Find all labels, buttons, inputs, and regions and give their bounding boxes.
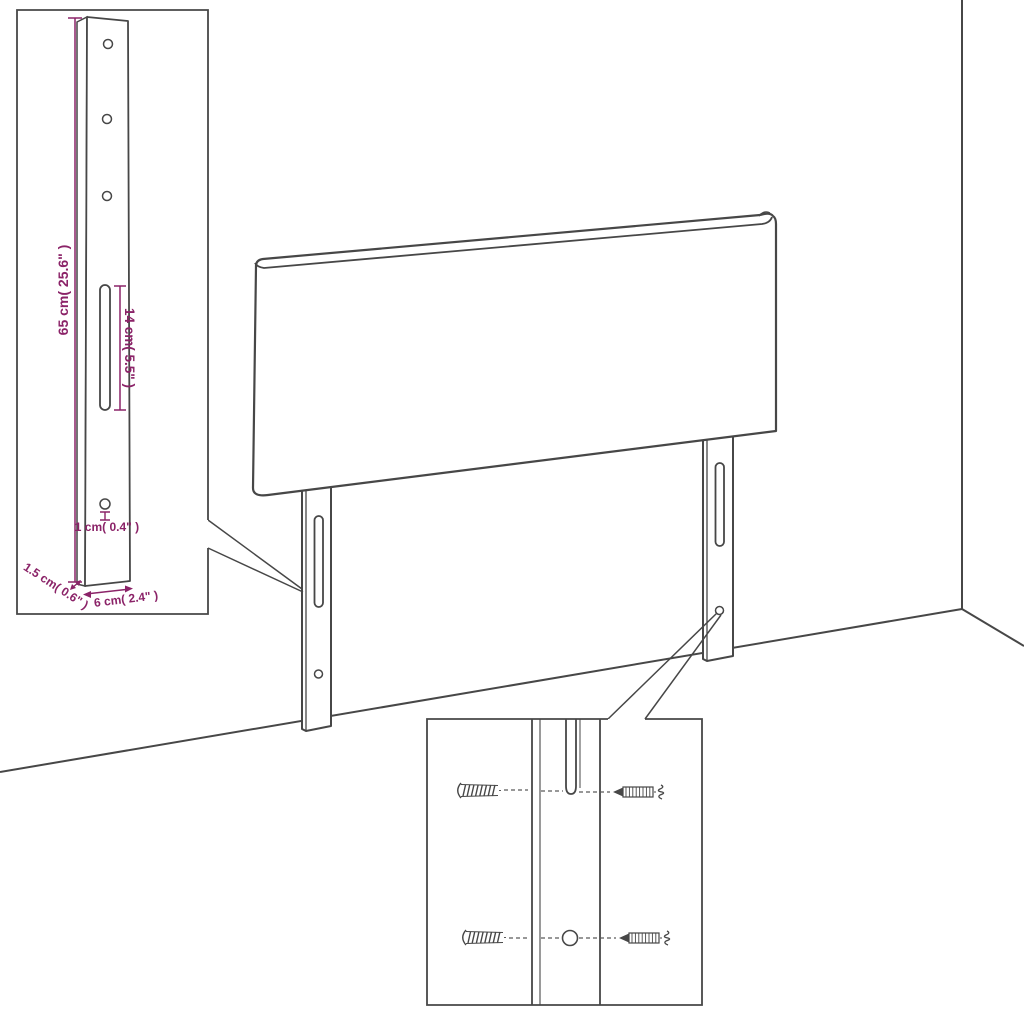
- diagram-canvas: 65 cm( 25.6" ) 14 cm( 5.5" ) 1 cm( 0.4" …: [0, 0, 1024, 1024]
- dimension-label-leg-height: 65 cm( 25.6" ): [55, 245, 71, 336]
- callout-left-leg: [208, 520, 303, 592]
- mounting-detail-inset: [427, 719, 702, 1005]
- left-leg: [302, 480, 331, 731]
- inset-leg-front-face: [85, 17, 130, 586]
- headboard-panel: [253, 212, 776, 495]
- leg-dimension-inset: 65 cm( 25.6" ) 14 cm( 5.5" ) 1 cm( 0.4" …: [17, 10, 208, 614]
- right-leg: [703, 425, 733, 661]
- floor-line-right: [962, 609, 1024, 646]
- dimension-label-slot-length: 14 cm( 5.5" ): [122, 308, 137, 388]
- dimension-label-hole-diameter: 1 cm( 0.4" ): [75, 520, 139, 534]
